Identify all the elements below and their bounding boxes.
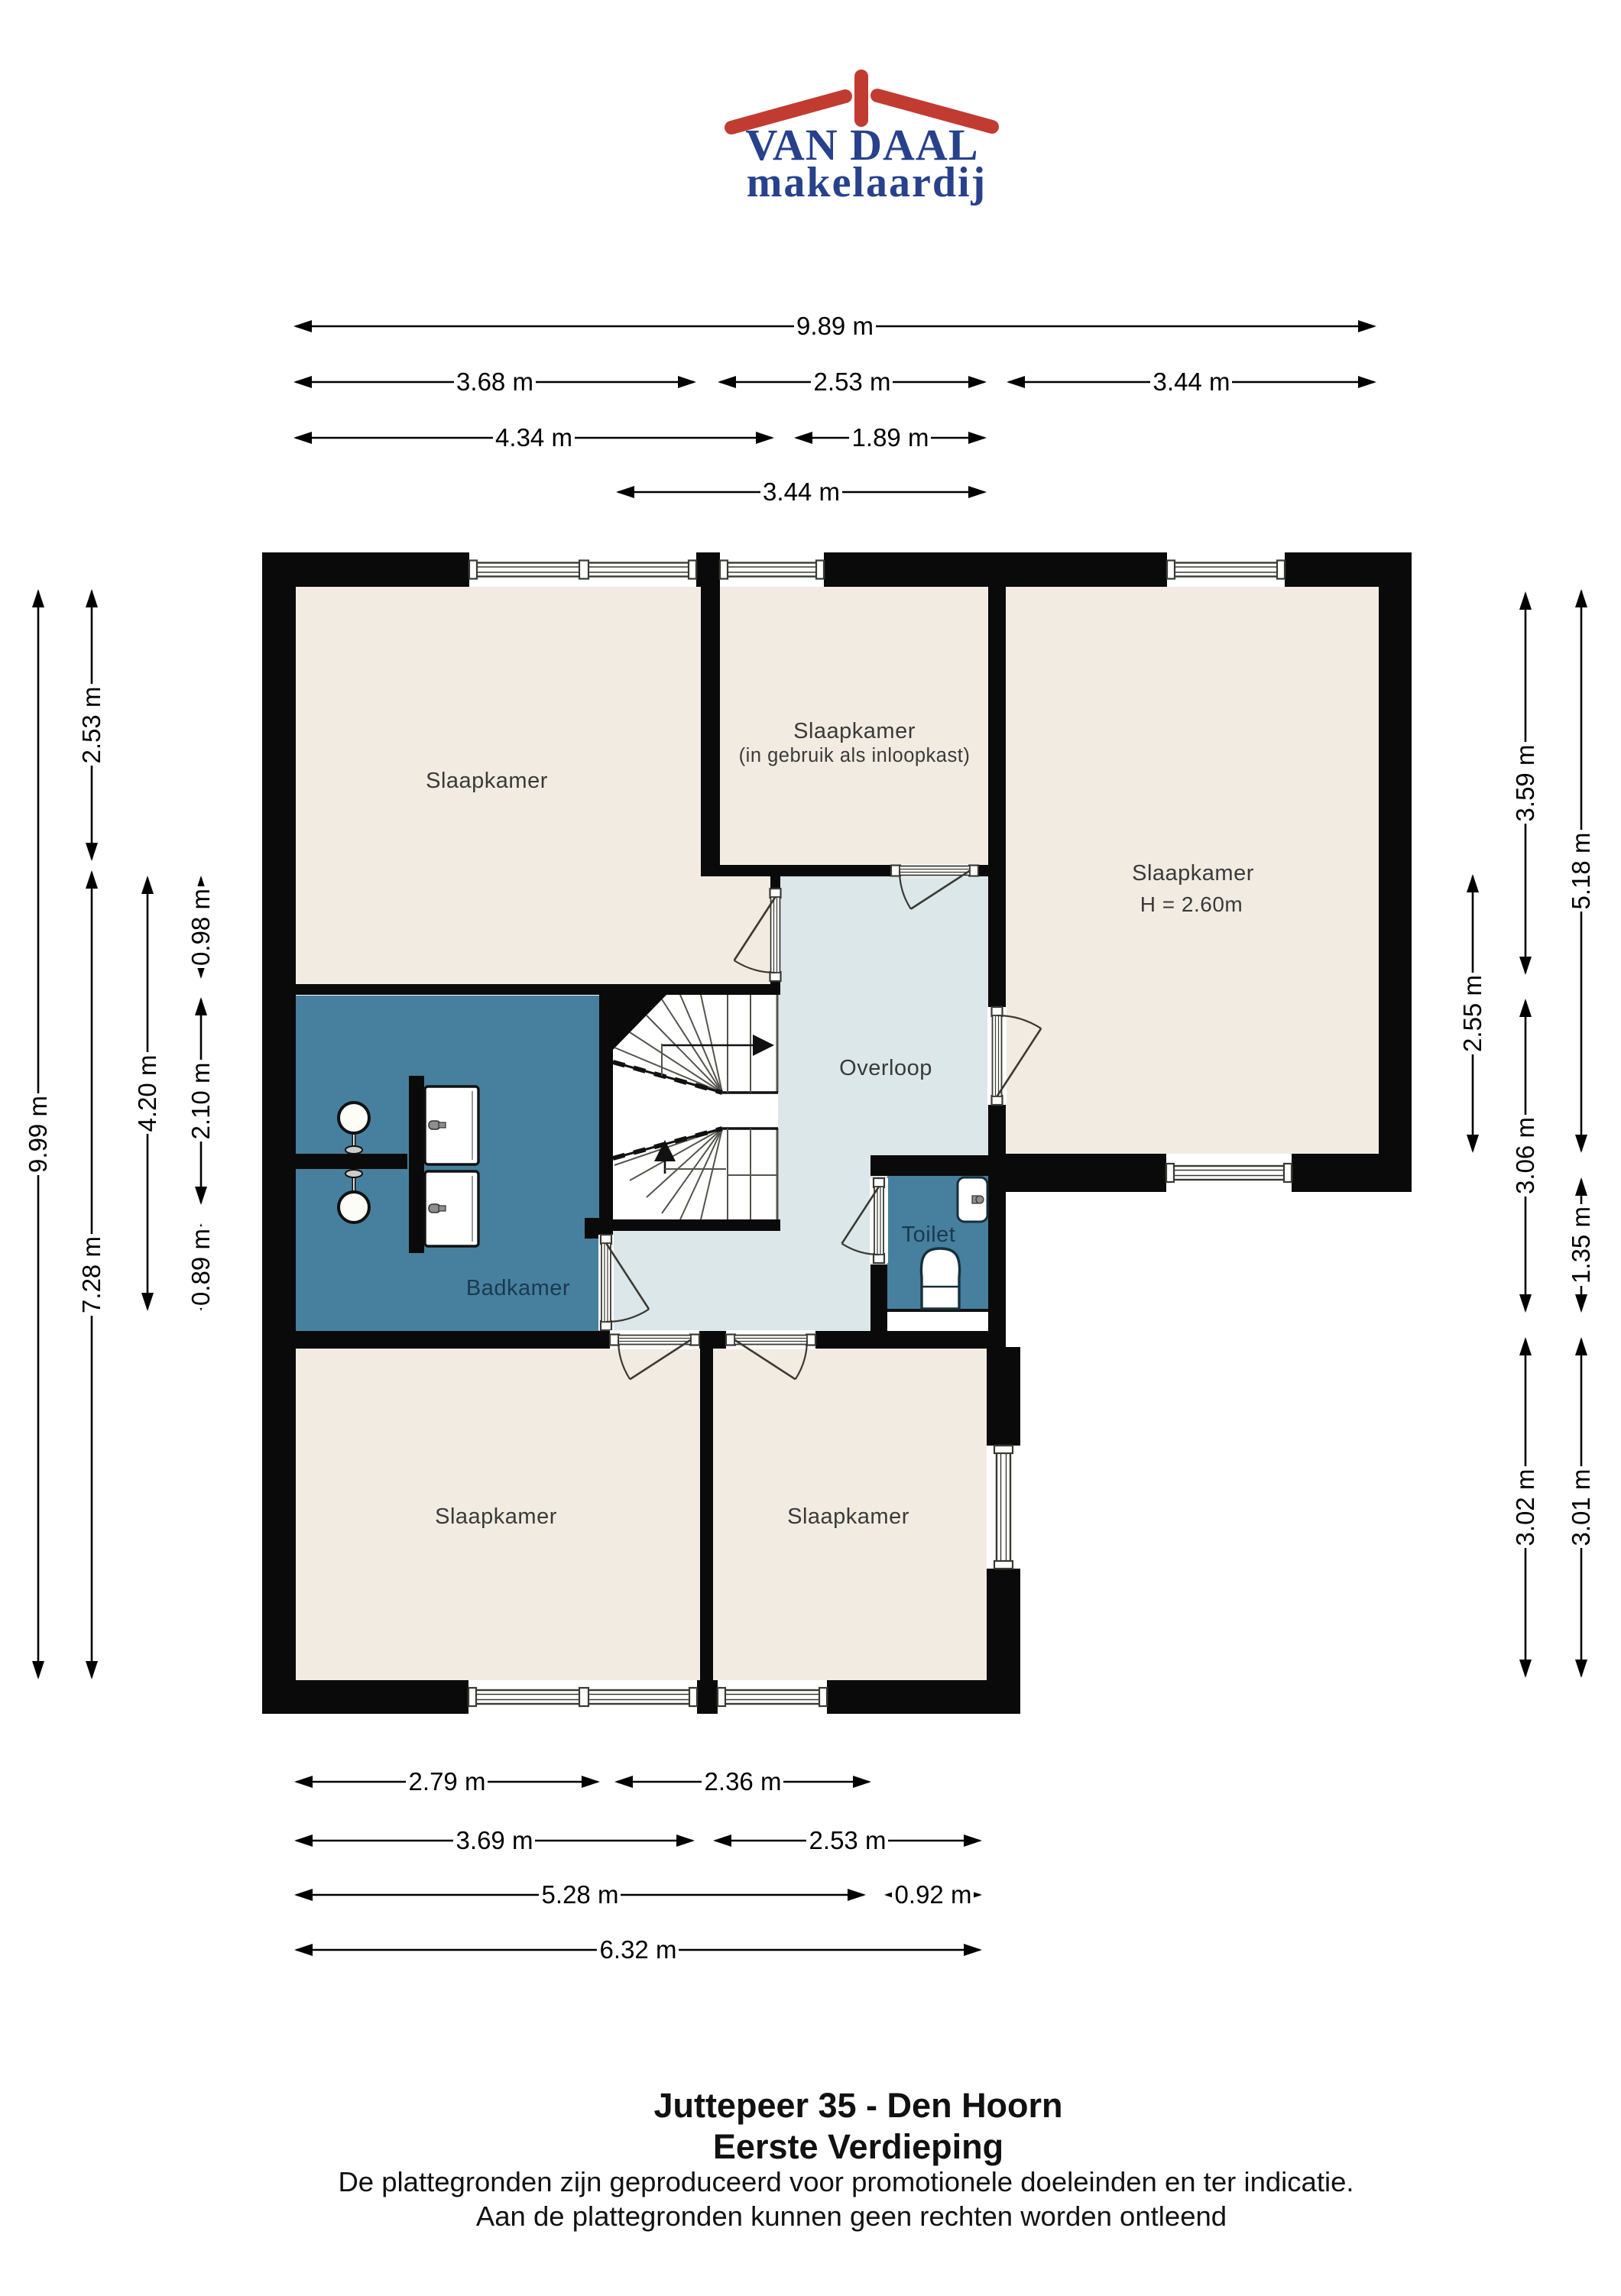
svg-text:Badkamer: Badkamer [466,1276,570,1300]
svg-text:9.99 m: 9.99 m [24,1096,52,1173]
svg-text:Slaapkamer: Slaapkamer [1132,861,1254,886]
svg-text:Juttepeer 35 - Den Hoorn: Juttepeer 35 - Den Hoorn [653,2086,1062,2125]
svg-text:H = 2.60m: H = 2.60m [1140,892,1243,916]
svg-text:Aan de plattegronden kunnen ge: Aan de plattegronden kunnen geen rechten… [476,2200,1227,2232]
svg-text:makelaardij: makelaardij [747,159,987,206]
svg-text:0.98 m: 0.98 m [186,889,215,966]
svg-text:Eerste Verdieping: Eerste Verdieping [713,2127,1003,2166]
svg-text:2.53 m: 2.53 m [77,687,105,764]
svg-text:1.35 m: 1.35 m [1567,1206,1595,1284]
svg-text:Slaapkamer: Slaapkamer [787,1504,909,1529]
svg-text:6.32 m: 6.32 m [600,1935,677,1964]
svg-text:2.53 m: 2.53 m [814,368,891,396]
svg-text:Toilet: Toilet [902,1222,956,1247]
svg-text:5.28 m: 5.28 m [542,1880,619,1909]
svg-text:3.01 m: 3.01 m [1567,1469,1595,1546]
svg-text:3.69 m: 3.69 m [456,1826,533,1854]
svg-text:3.68 m: 3.68 m [456,368,533,396]
svg-text:3.06 m: 3.06 m [1511,1117,1539,1194]
svg-text:2.55 m: 2.55 m [1458,975,1486,1052]
svg-text:Overloop: Overloop [839,1056,932,1080]
svg-text:Slaapkamer: Slaapkamer [426,769,548,793]
svg-text:(in gebruik als inloopkast): (in gebruik als inloopkast) [739,745,971,766]
svg-text:2.36 m: 2.36 m [705,1767,782,1796]
svg-text:4.20 m: 4.20 m [133,1055,161,1132]
svg-text:4.34 m: 4.34 m [495,423,572,452]
svg-text:0.89 m: 0.89 m [186,1229,215,1306]
svg-text:2.53 m: 2.53 m [809,1826,887,1854]
svg-text:3.44 m: 3.44 m [763,478,840,506]
svg-text:2.79 m: 2.79 m [409,1767,486,1796]
svg-text:5.18 m: 5.18 m [1567,833,1595,910]
svg-text:1.89 m: 1.89 m [852,423,929,452]
svg-text:3.44 m: 3.44 m [1153,368,1230,396]
svg-text:2.10 m: 2.10 m [186,1063,215,1140]
svg-text:3.59 m: 3.59 m [1511,745,1539,822]
svg-text:De plattegronden zijn geproduc: De plattegronden zijn geproduceerd voor … [338,2166,1354,2197]
svg-text:9.89 m: 9.89 m [796,312,874,340]
svg-text:Slaapkamer: Slaapkamer [435,1504,557,1529]
svg-text:0.92 m: 0.92 m [895,1880,972,1909]
svg-text:7.28 m: 7.28 m [77,1236,105,1313]
svg-text:3.02 m: 3.02 m [1511,1469,1539,1546]
svg-text:Slaapkamer: Slaapkamer [793,719,916,743]
